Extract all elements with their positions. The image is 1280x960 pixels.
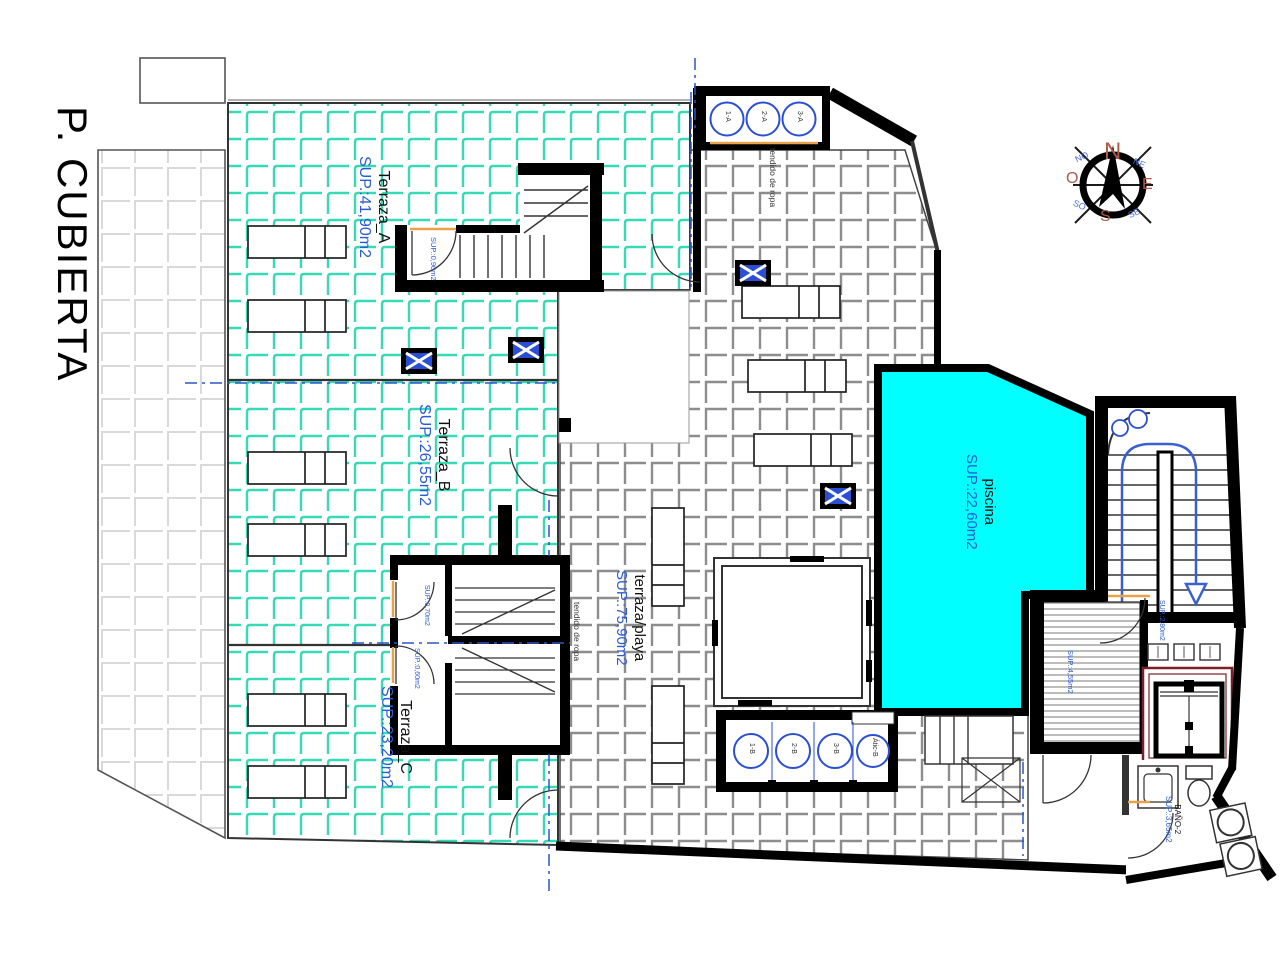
compass-s: S (1100, 208, 1111, 226)
compass-o: O (1066, 170, 1078, 188)
label-terraza-a: Terraza_A SUP.:41,90m2 (354, 156, 392, 258)
page-title: P. CUBIERTA (48, 106, 96, 382)
elevator (1143, 644, 1232, 764)
label-vent-atic-b: Átic-B (870, 738, 878, 757)
floor-plan: P. CUBIERTA Terraza_A SUP.:41,90m2 Terra… (0, 0, 1280, 960)
compass-e: E (1142, 176, 1153, 194)
label-terraza-c: Terraza_C SUP.:23,20m2 (376, 686, 414, 788)
label-piscina: piscina SUP.:22,60m2 (963, 454, 998, 550)
label-sup-stair-landing: SUP.:2,80m2 (1157, 600, 1165, 641)
label-vent-2a: 2-A (759, 111, 767, 122)
floor-plan-drawing (0, 0, 1280, 960)
label-sup-closet-mid-1: SUP.:0,70m2 (422, 585, 430, 626)
label-terraza-b: Terraza_B SUP.:26,55m2 (414, 404, 452, 506)
label-vent-1b: 1-B (747, 743, 755, 754)
label-vent-2b: 2-B (789, 743, 797, 754)
label-clothesline-mid: tendido de ropa (572, 602, 582, 661)
label-vent-3a: 3-A (795, 111, 803, 122)
label-bano-2: BAÑO-2 SUP.:3,65m2 (1163, 796, 1182, 843)
label-terraza-playa: terraza/playa SUP.:75,90m2 (613, 570, 648, 666)
door-below-pool (1043, 755, 1091, 803)
label-sup-solarium: SUP.:4,55m2 (1065, 650, 1074, 694)
left-walkway (98, 58, 225, 838)
label-clothesline-top: tendido de ropa (768, 148, 778, 207)
label-sup-closet-top: SUP.:0,90m2 (428, 237, 437, 281)
patio-opening (712, 556, 872, 706)
label-sup-closet-mid-2: SUP.:0,60m2 (412, 648, 420, 689)
stair-landing-area (559, 291, 689, 443)
roof-tab (140, 58, 225, 103)
label-vent-1a: 1-A (723, 111, 731, 122)
compass-n: N (1104, 138, 1121, 166)
label-vent-3b: 3-B (831, 743, 839, 754)
toilet (1186, 766, 1212, 806)
vent-pipes (1148, 644, 1220, 660)
